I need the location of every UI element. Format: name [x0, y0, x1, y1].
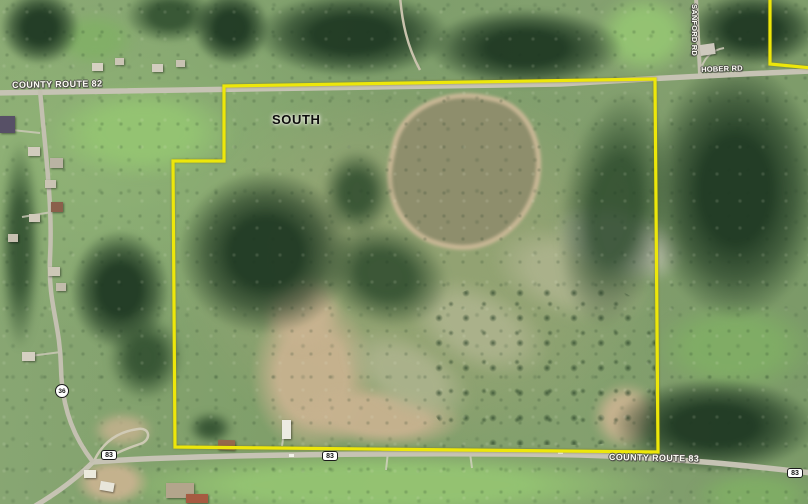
- forest-patch: [648, 60, 808, 320]
- forest-patch: [612, 378, 808, 473]
- vehicle: [289, 454, 294, 457]
- forest-patch: [188, 412, 233, 444]
- contour-band: [478, 207, 663, 344]
- driveway: [30, 352, 61, 356]
- terrain-texture: [0, 0, 808, 504]
- house: [48, 267, 60, 276]
- pasture-field: [690, 470, 808, 504]
- pasture-field: [52, 12, 137, 67]
- scattered-trees: [430, 285, 655, 445]
- house: [29, 214, 40, 222]
- road-label-county-route-83: COUNTY ROUTE 83: [609, 452, 700, 464]
- forest-patch: [192, 0, 270, 65]
- terrain-texture: [0, 0, 808, 504]
- farm-track: [400, 0, 420, 70]
- pasture-field: [95, 450, 670, 504]
- driveway: [386, 452, 388, 470]
- building: [186, 494, 208, 503]
- forest-patch: [0, 140, 40, 350]
- forest-patch: [307, 206, 463, 344]
- contour-band: [389, 256, 565, 399]
- house: [92, 63, 103, 71]
- route-shield-36: 36: [55, 384, 69, 398]
- forest-patch: [0, 0, 80, 65]
- forest-patch: [322, 150, 392, 235]
- bare-scree-strip: [544, 186, 696, 299]
- route-shield-83: 83: [787, 468, 803, 478]
- map-labels: SOUTH COUNTY ROUTE 82HOBER RDSANFORD RDC…: [0, 0, 808, 504]
- road-county-route-83: [93, 454, 808, 473]
- pasture-field: [595, 0, 695, 77]
- forest-patch: [125, 0, 215, 43]
- pasture-field: [48, 85, 238, 180]
- plowed-field: [592, 382, 660, 450]
- road-label-county-route-82: COUNTY ROUTE 82: [12, 78, 103, 90]
- house: [152, 64, 163, 72]
- route-shield-83: 83: [101, 450, 117, 460]
- house: [50, 158, 63, 168]
- driveway: [700, 48, 724, 73]
- roads-layer: [0, 0, 808, 504]
- house: [28, 147, 40, 156]
- forest-patch: [178, 170, 353, 335]
- driveway: [22, 212, 52, 217]
- house: [699, 43, 715, 56]
- driveway: [12, 130, 40, 133]
- house: [115, 58, 124, 65]
- parcel-interior-tone: [170, 75, 665, 460]
- building: [99, 481, 114, 492]
- driveway: [470, 453, 472, 468]
- road-county-route-82: [0, 71, 808, 93]
- house: [176, 60, 185, 67]
- road-label-sanford-rd: SANFORD RD: [690, 4, 699, 56]
- road-sanford-rd: [696, 0, 700, 74]
- forest-patch: [255, 0, 450, 77]
- driveway: [282, 433, 284, 446]
- contour-band: [329, 310, 488, 442]
- barn: [218, 440, 235, 451]
- aerial-map: SOUTH COUNTY ROUTE 82HOBER RDSANFORD RDC…: [0, 0, 808, 504]
- terrain-texture: [0, 0, 808, 504]
- road-route-36: [40, 90, 93, 462]
- house: [8, 234, 18, 242]
- teardrop-field: [373, 78, 555, 264]
- house: [51, 202, 63, 212]
- house: [22, 352, 35, 361]
- house: [0, 116, 15, 133]
- road-label-hober-rd: HOBER RD: [701, 64, 743, 74]
- forest-patch: [544, 84, 686, 337]
- gravel-lot: [74, 458, 150, 504]
- forest-patch: [428, 8, 623, 88]
- parcel-boundary-main: [173, 79, 658, 452]
- route-shield-83: 83: [322, 451, 338, 461]
- parcel-boundary-layer: [0, 0, 808, 504]
- forest-patch: [688, 0, 808, 67]
- dirt-loop: [92, 412, 154, 448]
- driveway-loop: [94, 429, 148, 461]
- parcel-boundary-secondary: [770, 0, 808, 68]
- house: [45, 180, 56, 188]
- forest-patch: [70, 230, 170, 350]
- building: [84, 470, 96, 478]
- pasture-field: [650, 300, 808, 395]
- road-county-route-83-south: [35, 462, 93, 504]
- trailer-building: [282, 420, 291, 439]
- area-label-south: SOUTH: [272, 112, 321, 127]
- plowed-field: [262, 272, 342, 352]
- plowed-field: [288, 379, 467, 453]
- house: [56, 283, 66, 291]
- building: [166, 483, 194, 498]
- forest-patch: [108, 315, 183, 400]
- vehicle: [558, 451, 563, 454]
- plowed-field: [250, 295, 375, 455]
